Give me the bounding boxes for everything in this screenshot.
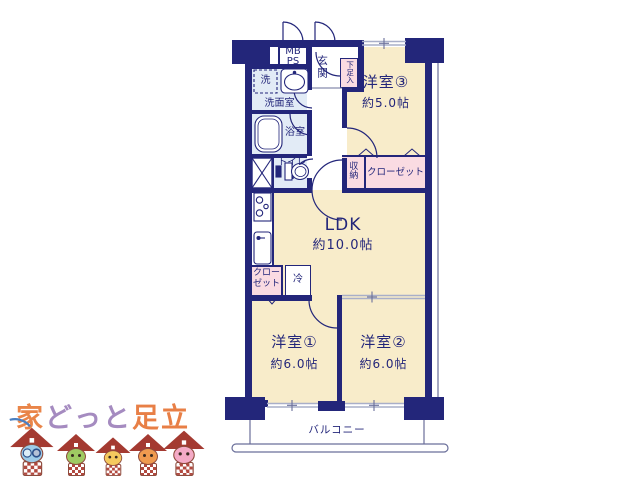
closet-fold-mark-3 [266, 297, 278, 304]
yellow-house-mascot [96, 437, 131, 476]
washroom-label: 洗面室 [252, 98, 307, 110]
ldk-door-arc-hall [312, 160, 342, 190]
mbps-label: MB PS [278, 47, 308, 67]
room1-door-arc [309, 300, 337, 328]
bathroom-label: 浴室 [282, 127, 308, 139]
bathtub-icon [255, 116, 282, 152]
glasses-icon [23, 448, 32, 457]
toilet-label: トイレ [277, 158, 307, 169]
washer-label: 洗 [254, 75, 277, 87]
entrance-door-arc-1 [283, 22, 303, 42]
floorplan-image: MB PS 玄関 下足入 洗 洗面室 浴室 トイレ 収納 クローゼット 冷 クロ… [0, 0, 640, 480]
room1-name: 洋室① [252, 334, 337, 351]
entrance-door-arc-2 [315, 22, 335, 42]
room1-size: 約6.0帖 [252, 358, 337, 372]
room2-size: 約6.0帖 [342, 358, 425, 372]
ldk-name: LDK [293, 216, 393, 236]
ldk-size: 約10.0帖 [293, 239, 393, 254]
closet-fold-mark-2 [404, 149, 420, 156]
kitchen-sink-icon [254, 232, 271, 264]
green-house-mascot [57, 434, 95, 476]
blue-house-mascot [10, 428, 54, 476]
room3-door-arc [347, 128, 377, 158]
mascot-face [20, 444, 43, 464]
fridge-label: 冷 [285, 274, 311, 286]
storage-label: 収納 [347, 161, 357, 179]
mascot-row [8, 426, 198, 476]
pink-house-mascot [163, 431, 204, 476]
pipe-space-icon [252, 158, 272, 188]
closet-lower-label: クローゼット [251, 268, 282, 291]
room3-name: 洋室③ [347, 74, 425, 91]
room2-name: 洋室② [342, 334, 425, 351]
room3-size: 約5.0帖 [347, 97, 425, 111]
entrance-label: 玄関 [316, 55, 328, 80]
orange-house-mascot [129, 434, 167, 476]
bathroom-sink-icon [281, 69, 308, 93]
ps-label: PS [278, 57, 308, 67]
closet-upper-label: クローゼット [366, 168, 425, 179]
stove-icon [254, 193, 271, 221]
balcony-label: バルコニー [277, 424, 397, 436]
closet-fold-mark-1 [358, 149, 374, 156]
